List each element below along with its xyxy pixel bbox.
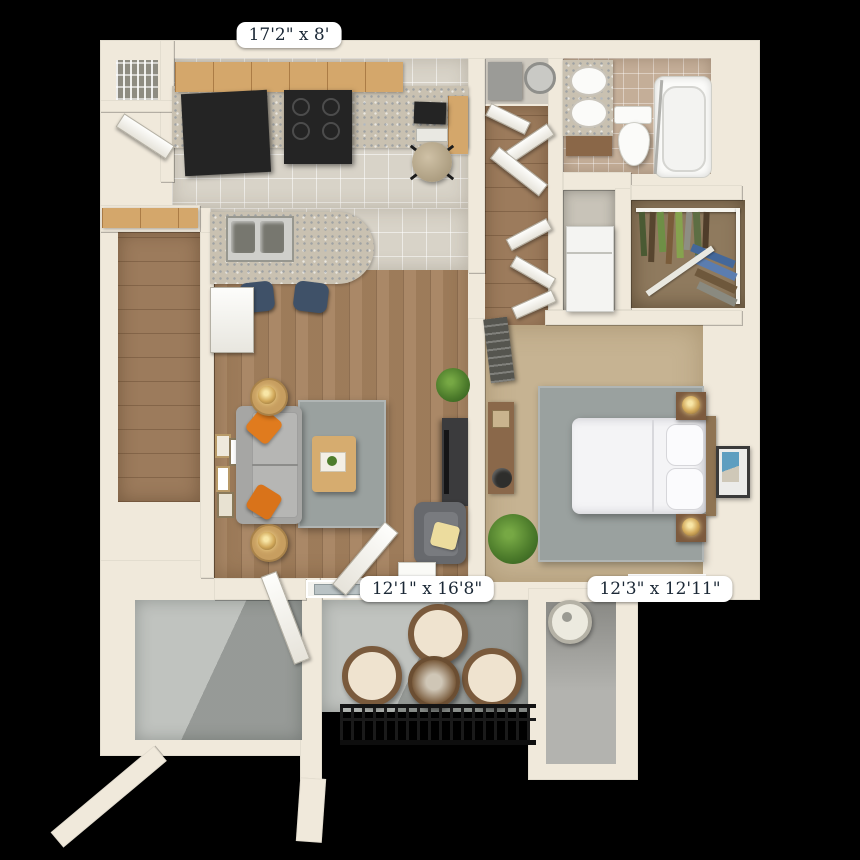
wall-art-print [722, 452, 739, 482]
desk-item [492, 410, 510, 428]
stove-burner [292, 98, 310, 116]
railing-mid-bar [340, 718, 536, 721]
hanging-clothes [702, 212, 709, 248]
closet-rail-right [736, 208, 740, 304]
bedroom-north-wall [545, 310, 742, 325]
desk-chair [492, 468, 512, 488]
entry-hall-floor [118, 232, 200, 502]
pantry-wire-shelf [116, 60, 158, 100]
living-south-wall [214, 578, 306, 600]
vanity-cabinet [566, 136, 612, 156]
bedroom-dimension-label: 12'3" x 12'11" [587, 576, 732, 602]
upper-cabinets [175, 62, 403, 92]
appliance-seam [566, 252, 612, 254]
bar-counter-cap [102, 208, 198, 228]
patio-chair [408, 604, 468, 664]
sink-basin-left [231, 221, 255, 253]
closet-north-wall [631, 185, 742, 200]
water-heater-pipe [562, 612, 572, 622]
potted-plant [436, 368, 470, 402]
patio-table [408, 656, 460, 708]
vanity-sink [570, 66, 608, 96]
bed-pillow [666, 424, 704, 466]
patio-chair [342, 646, 402, 706]
office-chair [412, 142, 452, 182]
exterior-wall-stub [296, 777, 326, 843]
exterior-diagonal-wall [51, 746, 167, 848]
furnace-unit [488, 62, 522, 100]
balcony-railing [340, 704, 536, 745]
hallway-east-wall [548, 58, 563, 310]
table-plant [327, 456, 337, 466]
sofa-seam [252, 464, 298, 466]
sink-basin-right [260, 221, 284, 253]
nightstand-lamp [682, 518, 700, 536]
bar-stool [292, 280, 329, 314]
hall-closet-door [210, 287, 254, 353]
bed-pillow [666, 468, 704, 510]
bathtub-basin [662, 86, 706, 172]
refrigerator [181, 90, 271, 176]
pantry-divider-wall [100, 100, 174, 112]
table-lamp [258, 532, 276, 550]
stove-burner [322, 98, 340, 116]
appliance-closet-wall [615, 188, 631, 310]
kitchen-hallway-wall [468, 58, 485, 273]
desk-keyboard [416, 128, 448, 142]
bedroom-plant [488, 514, 538, 564]
wall-frame [217, 492, 234, 518]
wall-frame [216, 466, 230, 492]
tv-screen [444, 430, 449, 494]
nightstand-lamp [682, 396, 700, 414]
vanity-sink [570, 98, 608, 128]
living-bedroom-wall [468, 318, 485, 584]
patio-chair [462, 648, 522, 708]
washer-dryer-unit [566, 226, 614, 312]
bed-fold-line [652, 420, 654, 512]
water-heater [548, 600, 592, 644]
table-lamp [258, 386, 276, 404]
floorplan-scene: 17'2" x 8' 12'1" x 16'8" 12'3" x 12'11" [0, 0, 860, 860]
headboard [706, 416, 716, 516]
stove-burner [322, 122, 340, 140]
living-dimension-label: 12'1" x 16'8" [360, 576, 494, 602]
desk-computer [414, 101, 447, 124]
patio-left-wall [300, 588, 322, 780]
duct-vent [524, 62, 556, 94]
stove-burner [292, 122, 310, 140]
kitchen-dimension-label: 17'2" x 8' [237, 22, 342, 48]
